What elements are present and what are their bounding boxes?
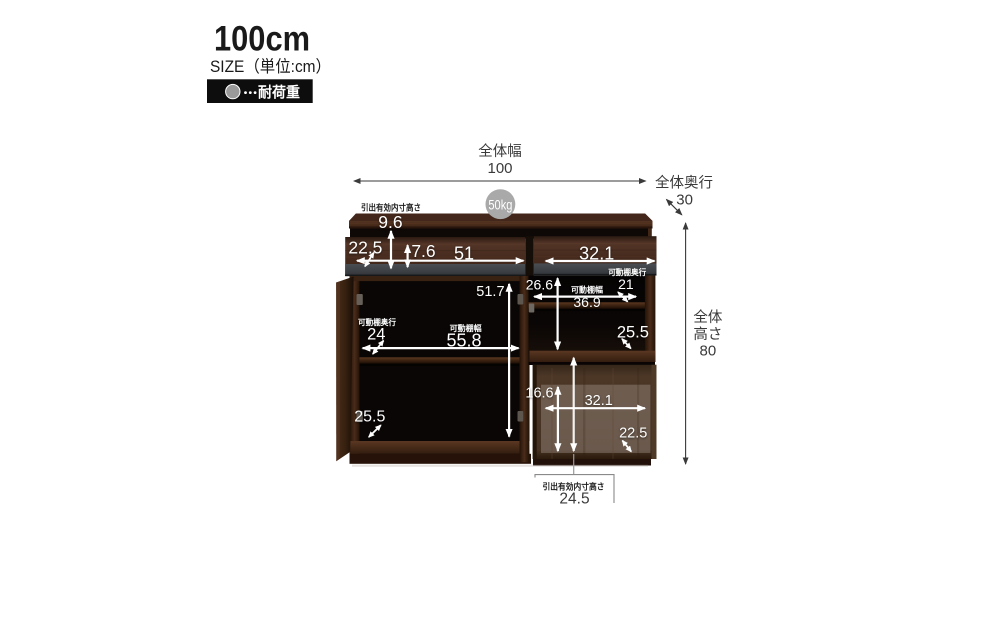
svg-text:24.5: 24.5 [559, 491, 589, 508]
svg-text:SIZE（単位:cm）: SIZE（単位:cm） [210, 57, 331, 76]
svg-text:全体奥行: 全体奥行 [655, 174, 713, 192]
svg-text:全体幅: 全体幅 [478, 142, 522, 160]
svg-text:32.1: 32.1 [585, 393, 613, 409]
svg-text:16.6: 16.6 [525, 385, 553, 401]
svg-text:30: 30 [676, 192, 693, 209]
svg-text:21: 21 [618, 276, 634, 292]
svg-text:高さ: 高さ [693, 326, 722, 343]
svg-text:可動棚幅: 可動棚幅 [571, 284, 603, 294]
svg-text:22.5: 22.5 [619, 426, 647, 442]
svg-text:26.6: 26.6 [526, 277, 553, 293]
svg-text:7.6: 7.6 [411, 241, 435, 261]
svg-text:100: 100 [487, 160, 512, 177]
svg-text:9.6: 9.6 [378, 212, 402, 232]
svg-text:36.9: 36.9 [573, 294, 600, 310]
svg-text:25.5: 25.5 [617, 323, 649, 341]
svg-text:100cm: 100cm [214, 20, 310, 59]
svg-text:22.5: 22.5 [348, 237, 382, 257]
svg-text:引出有効内寸高さ: 引出有効内寸高さ [361, 201, 421, 212]
svg-text:25.5: 25.5 [354, 408, 385, 425]
svg-text:51.7: 51.7 [476, 284, 504, 300]
svg-text:耐荷重: 耐荷重 [258, 83, 300, 101]
svg-text:全体: 全体 [693, 308, 722, 326]
svg-text:80: 80 [700, 343, 717, 360]
svg-text:50kg: 50kg [488, 196, 512, 212]
